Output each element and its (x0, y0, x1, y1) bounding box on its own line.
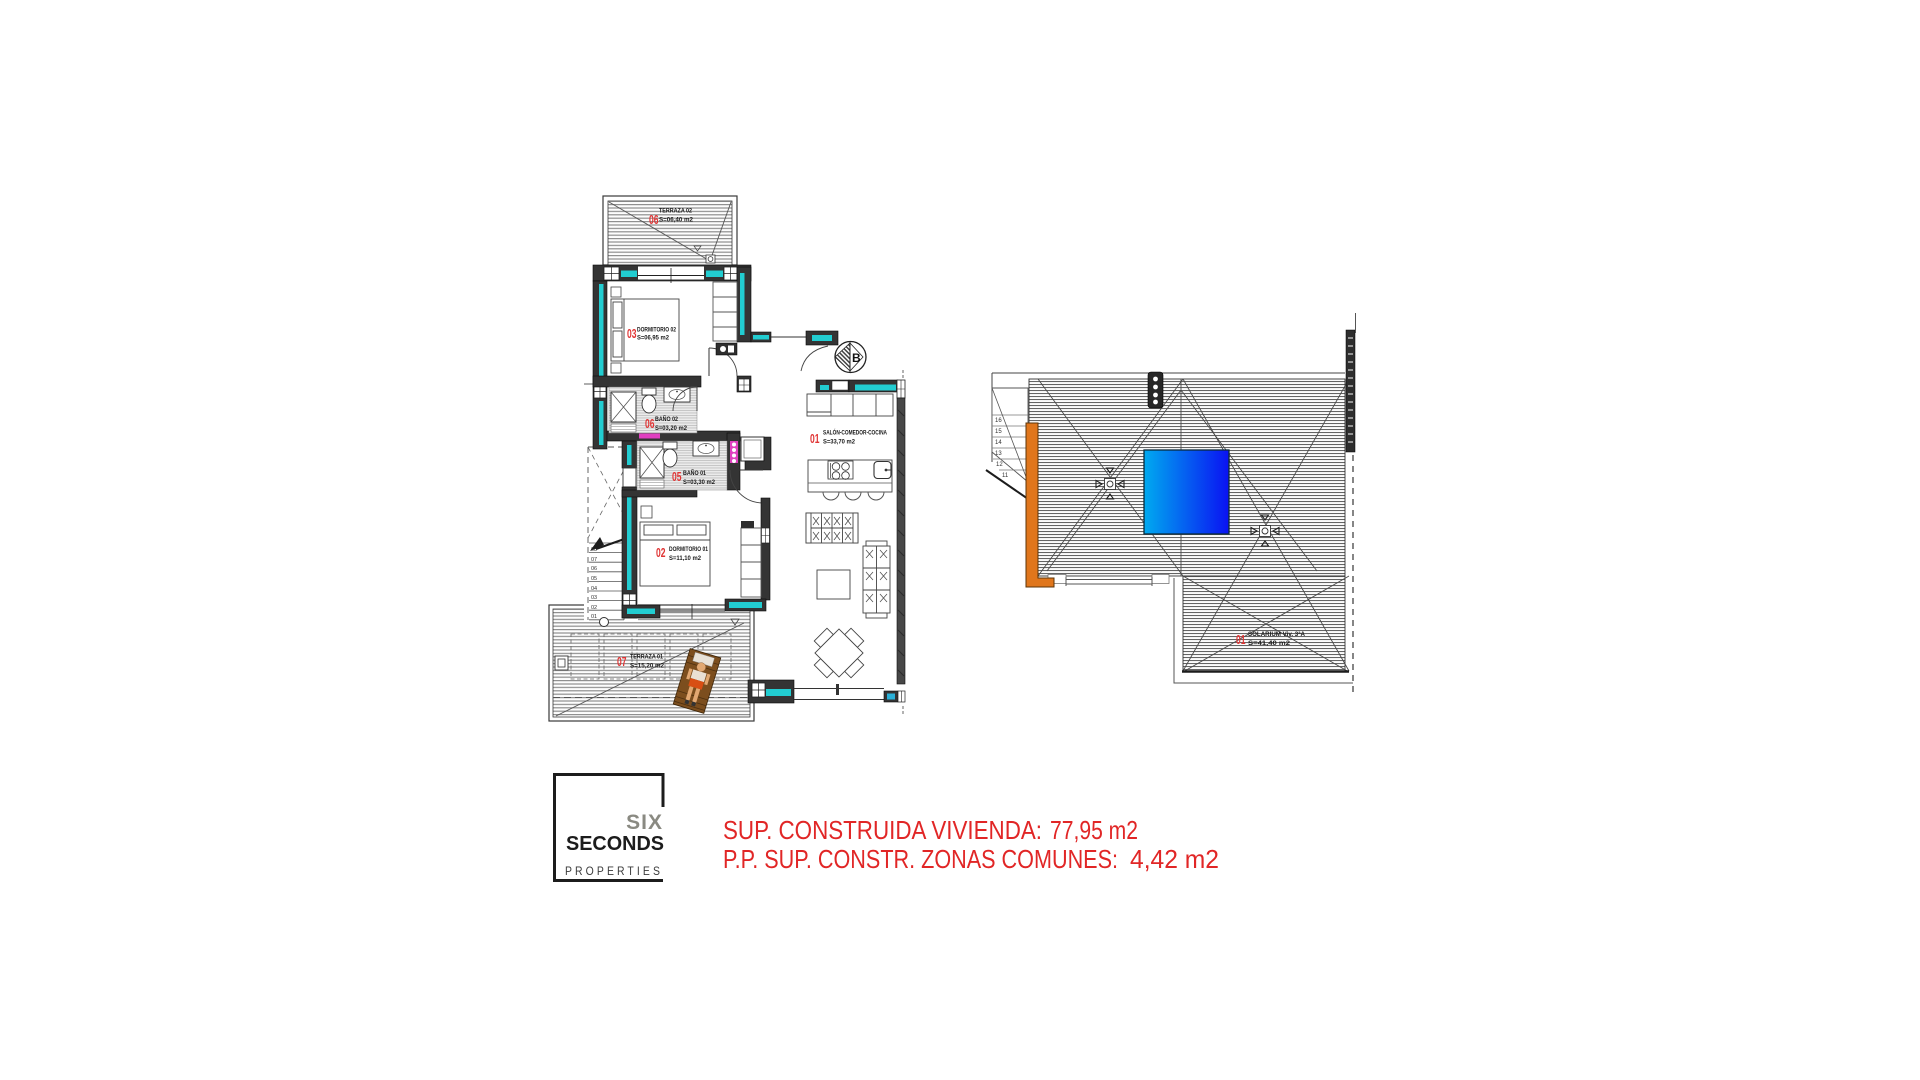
svg-text:S=06,40 m2: S=06,40 m2 (659, 217, 694, 224)
svg-text:S=15,20 m2: S=15,20 m2 (630, 663, 665, 670)
svg-text:06: 06 (645, 416, 655, 431)
svg-text:07: 07 (591, 557, 597, 563)
svg-text:BAÑO 02: BAÑO 02 (655, 416, 678, 423)
svg-text:TERRAZA 02: TERRAZA 02 (659, 208, 692, 215)
svg-text:03: 03 (627, 326, 637, 341)
svg-text:S=03,30 m2: S=03,30 m2 (683, 479, 716, 486)
svg-text:01: 01 (1236, 632, 1246, 647)
svg-text:01: 01 (591, 614, 597, 620)
svg-text:04: 04 (591, 586, 597, 592)
svg-text:77,95 m2: 77,95 m2 (1050, 815, 1138, 845)
svg-text:06: 06 (591, 566, 597, 572)
svg-text:DORMITORIO 02: DORMITORIO 02 (637, 327, 676, 334)
svg-text:B: B (852, 351, 861, 365)
svg-text:S=41,40 m2: S=41,40 m2 (1248, 640, 1290, 647)
svg-text:SECONDS: SECONDS (566, 833, 664, 855)
svg-text:P.P. SUP. CONSTR. ZONAS COMUNE: P.P. SUP. CONSTR. ZONAS COMUNES: (723, 844, 1118, 874)
svg-text:4,42 m2: 4,42 m2 (1130, 844, 1219, 874)
svg-text:S=03,20 m2: S=03,20 m2 (655, 425, 688, 432)
svg-text:BAÑO 01: BAÑO 01 (683, 470, 706, 477)
svg-text:PROPERTIES: PROPERTIES (565, 866, 663, 878)
svg-text:14: 14 (995, 440, 1002, 446)
svg-text:SOLARIUM Viv. 3ªA: SOLARIUM Viv. 3ªA (1248, 631, 1305, 638)
svg-text:03: 03 (591, 595, 597, 601)
svg-text:11: 11 (1002, 473, 1009, 479)
svg-text:S=33,70 m2: S=33,70 m2 (823, 439, 856, 446)
svg-text:S=06,95 m2: S=06,95 m2 (637, 335, 670, 342)
svg-text:02: 02 (656, 545, 666, 560)
svg-text:01: 01 (810, 431, 820, 446)
svg-text:12: 12 (996, 462, 1003, 468)
svg-text:SUP. CONSTRUIDA VIVIENDA:: SUP. CONSTRUIDA VIVIENDA: (723, 815, 1042, 845)
svg-text:SALÓN-COMEDOR-COCINA: SALÓN-COMEDOR-COCINA (823, 429, 887, 437)
svg-text:05: 05 (591, 576, 597, 582)
svg-text:TERRAZA 01: TERRAZA 01 (630, 654, 663, 661)
svg-text:SIX: SIX (626, 811, 663, 834)
svg-text:16: 16 (995, 418, 1002, 424)
svg-text:05: 05 (672, 469, 682, 484)
svg-text:13: 13 (995, 451, 1002, 457)
svg-text:02: 02 (591, 605, 597, 611)
svg-text:07: 07 (617, 654, 627, 669)
svg-text:15: 15 (995, 429, 1002, 435)
svg-text:S=11,10 m2: S=11,10 m2 (669, 555, 702, 562)
svg-text:DORMITORIO 01: DORMITORIO 01 (669, 546, 708, 553)
svg-text:06: 06 (649, 212, 659, 227)
